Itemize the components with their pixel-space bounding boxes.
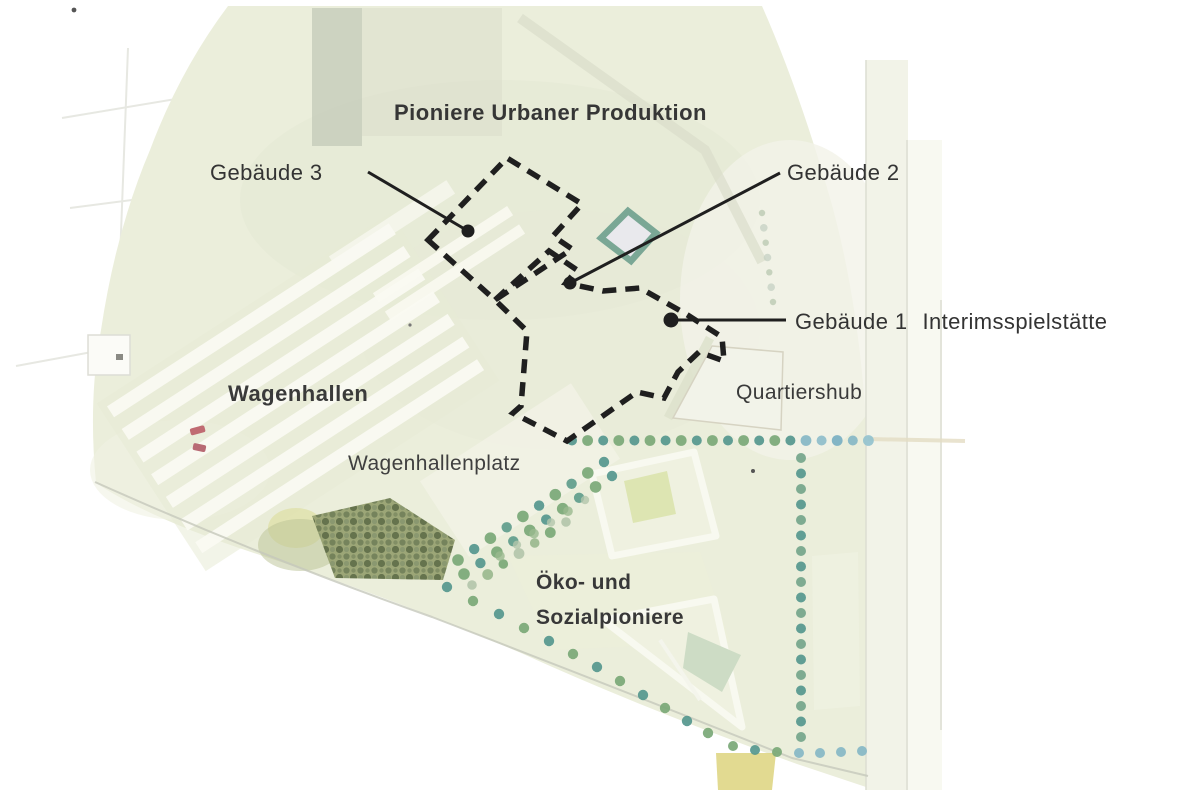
label-quartiershub: Quartiershub	[736, 381, 862, 405]
label-gebaeude-2: Gebäude 2	[787, 160, 899, 186]
yellow-patch	[716, 753, 776, 790]
label-oeko-line1: Öko- und	[536, 565, 684, 600]
gebaeude1-marker-dot	[664, 313, 679, 328]
label-gebaeude-3: Gebäude 3	[210, 160, 322, 186]
label-gebaeude-1: Gebäude 1Interimsspielstätte	[795, 309, 1107, 335]
gray-green-band	[312, 8, 362, 146]
label-wagenhallen: Wagenhallen	[228, 381, 368, 407]
label-oeko-line2: Sozialpioniere	[536, 600, 684, 635]
site-plan-map: Pioniere Urbaner Produktion Gebäude 3 Ge…	[0, 0, 1200, 800]
gebaeude2-marker-dot	[564, 277, 577, 290]
label-gebaeude-1-number: Gebäude 1	[795, 309, 907, 334]
small-building-left	[88, 335, 130, 375]
label-gebaeude-1-name: Interimsspielstätte	[922, 309, 1107, 334]
label-oeko-sozialpioniere: Öko- und Sozialpioniere	[536, 565, 684, 635]
map-title: Pioniere Urbaner Produktion	[394, 100, 707, 126]
label-wagenhallenplatz: Wagenhallenplatz	[348, 452, 521, 476]
gebaeude3-marker-dot	[462, 225, 475, 238]
